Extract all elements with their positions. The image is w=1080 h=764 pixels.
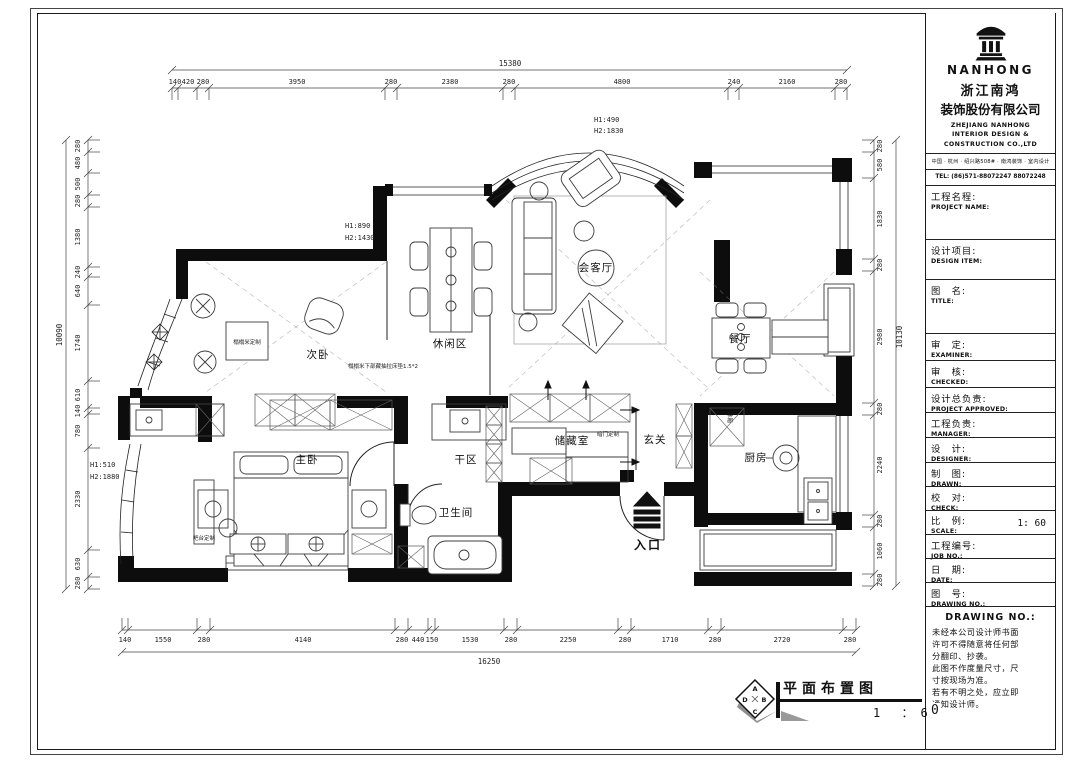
drawing-scale: 1 ：6 <box>873 704 935 721</box>
svg-text:140: 140 <box>169 78 182 86</box>
dim-right-total <box>892 136 900 590</box>
svg-text:3950: 3950 <box>289 78 306 86</box>
svg-text:1710: 1710 <box>662 636 679 644</box>
svg-text:1060: 1060 <box>876 543 884 560</box>
svg-text:150: 150 <box>426 636 439 644</box>
dim-left-total <box>62 136 70 593</box>
svg-text:140: 140 <box>119 636 132 644</box>
master-bedroom-furniture <box>130 404 386 566</box>
company-name-en: ZHEJIANG NANHONG INTERIOR DESIGN & CONST… <box>926 121 1055 149</box>
kitchen-furniture <box>766 416 836 524</box>
field-drawing-no: 图 号:DRAWING NO.: <box>926 582 1055 606</box>
svg-text:280: 280 <box>74 577 82 590</box>
plant-icon <box>530 182 548 200</box>
svg-text:580: 580 <box>876 159 884 172</box>
drawing-scale-zero: 0 <box>929 703 941 718</box>
svg-text:280: 280 <box>844 636 857 644</box>
bathtub-icon <box>428 536 502 574</box>
svg-text:4800: 4800 <box>614 78 631 86</box>
lounge-chair <box>302 295 347 337</box>
svg-text:240: 240 <box>728 78 741 86</box>
room-label-dry-area: 干区 <box>455 454 478 466</box>
field-project-name: 工程名程:PROJECT NAME: <box>926 185 1055 239</box>
dim-left-segments <box>84 136 100 593</box>
svg-text:1530: 1530 <box>462 636 479 644</box>
svg-text:280: 280 <box>709 636 722 644</box>
svg-text:2980: 2980 <box>876 329 884 346</box>
stove-icon <box>773 445 799 471</box>
svg-text:10130: 10130 <box>895 325 904 348</box>
brand-name: NANHONG <box>926 63 1055 77</box>
company-address: 中国 · 杭州 · 绍兴路508# · 南鸿装饰 · 室内设计 <box>926 154 1055 169</box>
field-title: 图 名:TITLE: <box>926 279 1055 333</box>
room-label-living: 会客厅 <box>579 261 614 274</box>
nanhong-column-logo-icon <box>968 19 1014 61</box>
svg-text:10090: 10090 <box>55 323 64 346</box>
dim-top-segments <box>168 84 851 100</box>
sofa <box>512 198 556 314</box>
room-label-storage: 储藏室 <box>555 434 590 447</box>
floor-cushion <box>562 293 623 353</box>
dim-bottom-total <box>118 648 860 656</box>
svg-text:1830: 1830 <box>876 211 884 228</box>
room-label-bathroom: 卫生间 <box>439 506 474 519</box>
drawing-sheet: 140 420 280 3950 280 2380 280 4800 240 2… <box>0 0 1080 764</box>
svg-text:480: 480 <box>74 157 82 170</box>
dry-area-furniture <box>432 404 506 440</box>
field-examiner: 审 定:EXAMINER: <box>926 333 1055 360</box>
svg-text:640: 640 <box>74 285 82 298</box>
svg-text:1380: 1380 <box>74 229 82 246</box>
svg-text:280: 280 <box>503 78 516 86</box>
field-design-item: 设计项目:DESIGN ITEM: <box>926 239 1055 279</box>
company-name-cn-2: 装饰股份有限公司 <box>926 99 1055 118</box>
svg-text:1550: 1550 <box>155 636 172 644</box>
floor-plan: 140 420 280 3950 280 2380 280 4800 240 2… <box>0 0 925 764</box>
field-scale: 比 例:SCALE: 1: 60 <box>926 510 1055 534</box>
svg-text:16250: 16250 <box>478 657 501 666</box>
company-tel: TEL: (86)571-88072247 88072248 <box>926 170 1055 185</box>
svg-text:280: 280 <box>198 636 211 644</box>
dim-labels-right: 280 580 1830 280 2980 280 2240 280 1060 … <box>876 140 904 587</box>
field-checked: 审 核:CHECKED: <box>926 360 1055 387</box>
company-name-cn-1: 浙江南鸿 <box>926 80 1055 99</box>
svg-text:280: 280 <box>835 78 848 86</box>
svg-text:H1:490: H1:490 <box>594 116 619 124</box>
field-manager: 工程负责:MANAGER: <box>926 412 1055 437</box>
svg-text:2160: 2160 <box>779 78 796 86</box>
svg-text:280: 280 <box>74 140 82 153</box>
room-label-master: 主卧 <box>296 453 319 466</box>
svg-text:280: 280 <box>385 78 398 86</box>
room-label-foyer: 玄关 <box>644 433 667 446</box>
room-label-dining: 餐厅 <box>729 332 752 345</box>
drawing-title-rule <box>779 699 922 702</box>
svg-text:280: 280 <box>197 78 210 86</box>
svg-text:D: D <box>742 696 748 704</box>
field-designer: 设 计:DESIGNER: <box>926 437 1055 462</box>
svg-text:2240: 2240 <box>876 457 884 474</box>
storage-room-furniture <box>512 381 639 482</box>
svg-text:140: 140 <box>74 405 82 418</box>
svg-text:630: 630 <box>74 558 82 571</box>
scale-value: 1: 60 <box>1017 518 1050 529</box>
svg-text:280: 280 <box>876 515 884 528</box>
svg-text:H2:1830: H2:1830 <box>594 127 624 135</box>
field-drawn: 制 图:DRAWN: <box>926 462 1055 486</box>
svg-text:280: 280 <box>619 636 632 644</box>
svg-text:H2:1430: H2:1430 <box>345 234 375 242</box>
room-label-second-bedroom: 次卧 <box>307 348 330 361</box>
field-check: 校 对:CHECK: <box>926 486 1055 510</box>
svg-text:240: 240 <box>74 266 82 279</box>
dim-labels-left: 280 480 500 280 1380 240 640 1740 610 14… <box>55 140 82 590</box>
coffee-table-small <box>574 221 594 241</box>
plant-icon <box>519 313 537 331</box>
svg-text:2250: 2250 <box>560 636 577 644</box>
dim-bottom-segments <box>118 618 860 634</box>
toilet-icon <box>400 504 410 526</box>
svg-text:C: C <box>753 708 758 716</box>
field-date: 日 期:DATE: <box>926 558 1055 582</box>
annotations: H1:490 H2:1830 H1:890 H2:1430 H1:510 H2:… <box>90 116 734 542</box>
svg-text:H1:510: H1:510 <box>90 461 115 469</box>
svg-text:2380: 2380 <box>442 78 459 86</box>
room-label-entry: 入口 <box>634 538 662 552</box>
armchair <box>558 147 624 210</box>
svg-text:610: 610 <box>74 389 82 402</box>
svg-text:280: 280 <box>74 195 82 208</box>
svg-text:H2:1880: H2:1880 <box>90 473 120 481</box>
svg-text:榻榻米定制: 榻榻米定制 <box>233 338 261 346</box>
svg-text:280: 280 <box>876 574 884 587</box>
entry-symbol <box>634 492 660 528</box>
svg-text:A: A <box>752 685 757 693</box>
field-job-no: 工程编号:JOB NO.: <box>926 534 1055 558</box>
nightstand <box>198 490 228 528</box>
copyright-notes: DRAWING NO.: 未经本公司设计师书面 许可不得随意将任何部 分翻印、抄… <box>926 606 1055 749</box>
room-label-kitchen: 厨房 <box>745 451 768 464</box>
svg-text:280: 280 <box>876 403 884 416</box>
svg-text:吧台定制: 吧台定制 <box>193 534 216 542</box>
svg-text:2330: 2330 <box>74 491 82 508</box>
dim-labels-top: 140 420 280 3950 280 2380 280 4800 240 2… <box>169 59 848 86</box>
svg-text:280: 280 <box>876 259 884 272</box>
svg-text:420: 420 <box>182 78 195 86</box>
svg-text:1740: 1740 <box>74 335 82 352</box>
dim-labels-bottom: 140 1550 280 4140 280 440 150 1530 280 2… <box>119 636 857 666</box>
svg-text:暗门定制: 暗门定制 <box>597 430 620 438</box>
svg-text:440: 440 <box>412 636 425 644</box>
svg-text:500: 500 <box>74 178 82 191</box>
svg-text:280: 280 <box>396 636 409 644</box>
svg-text:冰箱: 冰箱 <box>726 412 734 424</box>
svg-text:780: 780 <box>74 425 82 438</box>
svg-text:2720: 2720 <box>774 636 791 644</box>
drawing-title: 平面布置图 <box>783 678 878 698</box>
living-room-furniture <box>512 147 666 353</box>
svg-text:4140: 4140 <box>295 636 312 644</box>
bar-sink <box>136 410 162 430</box>
svg-text:15380: 15380 <box>499 59 522 68</box>
svg-text:榻榻米下部藏抽拉床垫1.5*2: 榻榻米下部藏抽拉床垫1.5*2 <box>348 362 418 370</box>
vanity-sink <box>450 410 480 432</box>
field-project-approved: 设计总负责:PROJECT APPROVED: <box>926 387 1055 412</box>
nightstand <box>352 490 386 528</box>
svg-text:H1:890: H1:890 <box>345 222 370 230</box>
svg-text:280: 280 <box>505 636 518 644</box>
leisure-area-furniture <box>410 228 492 332</box>
room-label-leisure: 休闲区 <box>433 337 468 350</box>
svg-text:B: B <box>762 696 767 704</box>
svg-text:280: 280 <box>876 140 884 153</box>
second-bedroom-furniture <box>191 294 346 373</box>
title-block: NANHONG 浙江南鸿 装饰股份有限公司 ZHEJIANG NANHONG I… <box>925 13 1055 749</box>
title-block-header: NANHONG 浙江南鸿 装饰股份有限公司 ZHEJIANG NANHONG I… <box>926 13 1055 185</box>
